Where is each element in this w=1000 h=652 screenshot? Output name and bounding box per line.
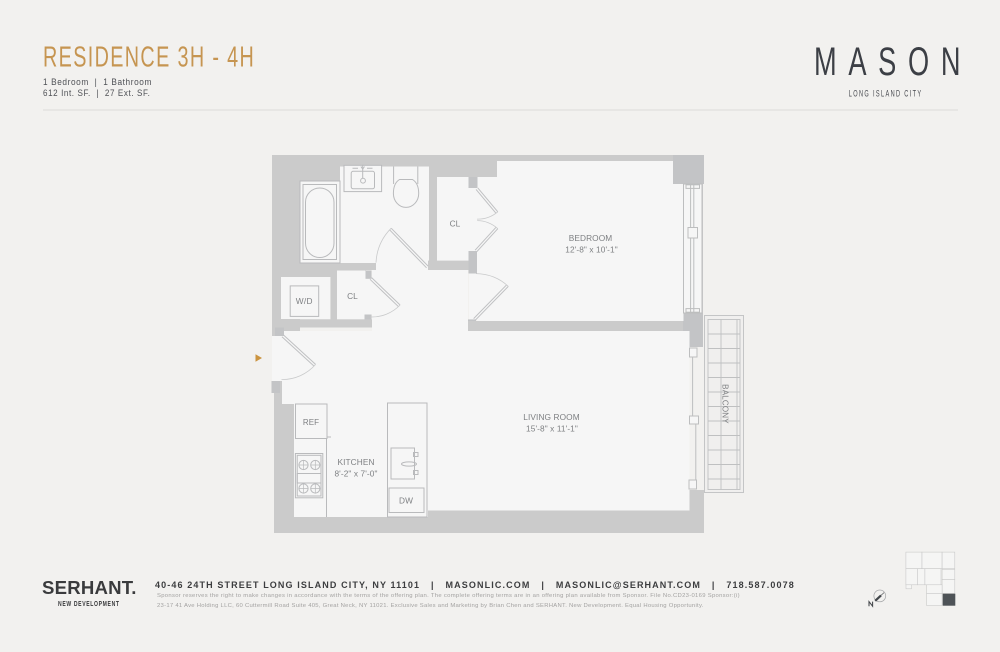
- svg-text:NEW DEVELOPMENT: NEW DEVELOPMENT: [58, 600, 120, 608]
- svg-text:LIVING ROOM: LIVING ROOM: [523, 412, 579, 422]
- svg-text:1 Bedroom | 1 Bathroom: 1 Bedroom | 1 Bathroom: [43, 76, 152, 87]
- svg-text:MASON: MASON: [814, 40, 972, 84]
- svg-text:RESIDENCE 3H - 4H: RESIDENCE 3H - 4H: [43, 42, 255, 74]
- svg-text:12'-8" x 10'-1": 12'-8" x 10'-1": [565, 244, 618, 254]
- svg-text:8'-2" x 7'-0": 8'-2" x 7'-0": [334, 468, 377, 478]
- svg-text:BALCONY: BALCONY: [721, 384, 730, 424]
- svg-text:23-17 41 Ave Holding LLC, 60 C: 23-17 41 Ave Holding LLC, 60 Cuttermill …: [157, 603, 704, 609]
- svg-text:40-46 24TH STREET LONG ISLAND: 40-46 24TH STREET LONG ISLAND CITY, NY 1…: [155, 580, 795, 590]
- svg-text:REF: REF: [303, 418, 319, 427]
- svg-text:612 Int. SF. | 27 Ext. SF.: 612 Int. SF. | 27 Ext. SF.: [43, 87, 150, 98]
- svg-text:DW: DW: [399, 495, 413, 505]
- svg-text:15'-8" x 11'-1": 15'-8" x 11'-1": [526, 424, 578, 434]
- svg-text:LONG ISLAND CITY: LONG ISLAND CITY: [849, 88, 923, 99]
- svg-text:W/D: W/D: [296, 296, 313, 306]
- svg-text:Sponsor reserves the right to: Sponsor reserves the right to make chang…: [157, 593, 740, 599]
- svg-text:BEDROOM: BEDROOM: [569, 233, 613, 243]
- svg-text:KITCHEN: KITCHEN: [337, 457, 374, 467]
- svg-text:SERHANT.: SERHANT.: [42, 577, 137, 598]
- svg-text:CL: CL: [450, 218, 461, 228]
- svg-text:CL: CL: [347, 291, 358, 301]
